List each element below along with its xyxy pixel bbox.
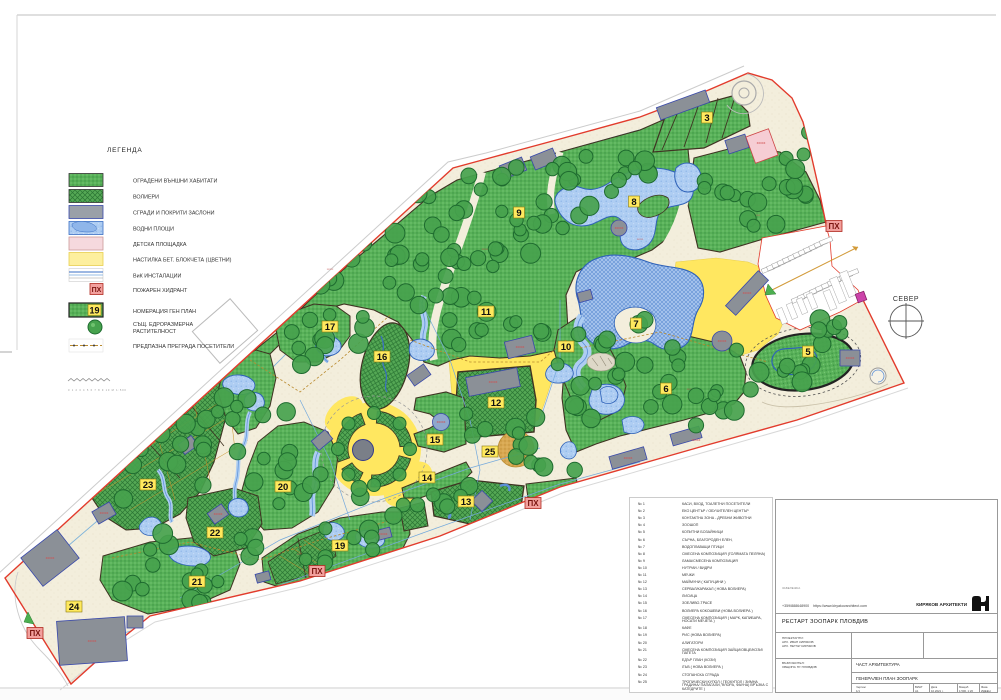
svg-text:СГРАДИ И ПОКРИТИ ЗАСЛОНИ: СГРАДИ И ПОКРИТИ ЗАСЛОНИ (133, 211, 215, 217)
svg-text:15: 15 (430, 435, 441, 446)
svg-text:НАСТИЛКА БЕТ. БЛОКЧЕТА (ЦВЕТНИ: НАСТИЛКА БЕТ. БЛОКЧЕТА (ЦВЕТНИ) (133, 258, 232, 264)
svg-text:ДЕТСКА ПЛОЩАДКА: ДЕТСКА ПЛОЩАДКА (133, 242, 187, 248)
svg-text:6: 6 (663, 384, 668, 395)
svg-text:17: 17 (325, 322, 336, 333)
svg-text:НОМЕРАЦИЯ ГЕН ПЛАН: НОМЕРАЦИЯ ГЕН ПЛАН (133, 309, 196, 315)
svg-text:XXXXX: XXXXX (757, 141, 766, 145)
svg-text:ПХ: ПХ (92, 287, 102, 294)
svg-text:19: 19 (335, 541, 346, 552)
svg-text:XXXXX: XXXXX (379, 532, 388, 536)
svg-text:xxxxx: xxxxx (637, 238, 644, 241)
svg-text:9: 9 (516, 208, 521, 219)
svg-text:СЪЩ. ЕДРОРАЗМЕРНА: СЪЩ. ЕДРОРАЗМЕРНА (133, 322, 194, 328)
svg-text:ВОДНИ ПЛОЩИ: ВОДНИ ПЛОЩИ (133, 227, 174, 233)
svg-text:22: 22 (210, 528, 221, 539)
svg-text:ПХ: ПХ (311, 567, 323, 576)
svg-text:ОГРАДЕНИ ВЪНШНИ ХАБИТАТИ: ОГРАДЕНИ ВЪНШНИ ХАБИТАТИ (133, 179, 217, 185)
svg-text:14: 14 (422, 473, 433, 484)
svg-text:5: 5 (805, 347, 811, 358)
svg-text:ЛЕГЕНДА: ЛЕГЕНДА (107, 147, 143, 154)
svg-text:0 1 2 3 4 5 6 7 8 9 10 M 1:500: 0 1 2 3 4 5 6 7 8 9 10 M 1:500 (68, 388, 127, 392)
svg-text:XXXXX: XXXXX (718, 339, 727, 343)
svg-text:ПОЖАРЕН ХИДРАНТ: ПОЖАРЕН ХИДРАНТ (133, 288, 188, 294)
svg-text:XXXXX: XXXXX (624, 456, 633, 460)
svg-text:XXXXX: XXXXX (100, 511, 109, 515)
svg-text:ПРЕДПАЗНА ПРЕГРАДА ПОСЕТИТЕЛИ: ПРЕДПАЗНА ПРЕГРАДА ПОСЕТИТЕЛИ (133, 344, 234, 350)
svg-text:xxxxx: xxxxx (327, 268, 334, 271)
svg-text:XXXXX: XXXXX (88, 639, 97, 643)
svg-text:23: 23 (143, 480, 154, 491)
svg-text:XXXXX: XXXXX (489, 380, 498, 384)
svg-text:ВОЛИЕРИ: ВОЛИЕРИ (133, 195, 159, 201)
svg-text:XXXXX: XXXXX (846, 356, 855, 360)
svg-text:ВиК ИНСТАЛАЦИИ: ВиК ИНСТАЛАЦИИ (133, 274, 182, 280)
svg-text:20: 20 (278, 482, 289, 493)
svg-text:ПХ: ПХ (29, 629, 41, 638)
svg-text:11: 11 (481, 307, 492, 318)
svg-text:12: 12 (491, 398, 502, 409)
svg-text:ПХ: ПХ (527, 499, 539, 508)
svg-text:19: 19 (89, 306, 99, 316)
svg-text:XXXXX: XXXXX (516, 345, 525, 349)
svg-text:16: 16 (377, 352, 388, 363)
svg-text:РАСТИТЕЛНОСТ: РАСТИТЕЛНОСТ (133, 329, 177, 335)
svg-text:XXXXX: XXXXX (743, 291, 752, 295)
svg-text:7: 7 (633, 319, 638, 330)
svg-text:3: 3 (704, 113, 709, 124)
svg-text:8: 8 (631, 197, 636, 208)
svg-text:XXXXX: XXXXX (692, 438, 701, 442)
svg-text:XXXXX: XXXXX (46, 556, 55, 560)
svg-text:СЕВЕР: СЕВЕР (893, 296, 919, 303)
svg-text:24: 24 (69, 602, 80, 613)
svg-text:21: 21 (192, 577, 203, 588)
svg-text:XXXXX: XXXXX (437, 420, 446, 424)
svg-text:25: 25 (485, 447, 496, 458)
svg-text:XXXXX: XXXXX (214, 512, 223, 516)
svg-text:XXXXX: XXXXX (615, 226, 624, 230)
svg-text:ПХ: ПХ (828, 222, 840, 231)
svg-text:10: 10 (561, 342, 572, 353)
svg-text:13: 13 (461, 497, 472, 508)
